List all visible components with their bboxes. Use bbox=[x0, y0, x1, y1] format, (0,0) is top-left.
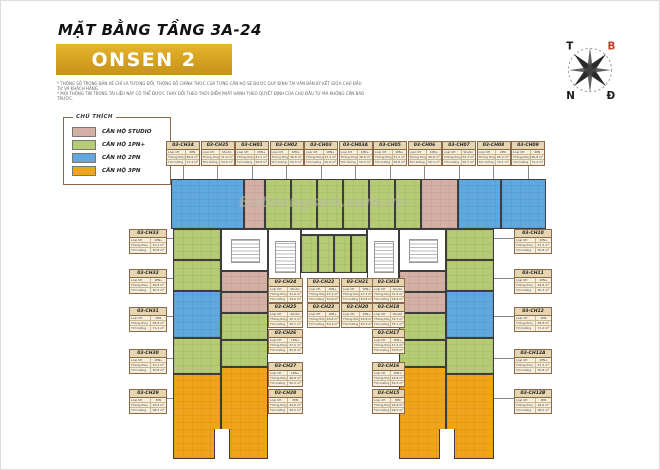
unit-id: 03-CH12A bbox=[515, 350, 551, 358]
unit-block bbox=[265, 179, 291, 229]
unit-block bbox=[221, 292, 268, 313]
elevator-stair-core bbox=[221, 229, 268, 271]
unit-block bbox=[395, 179, 421, 229]
unit-spec-row: Tim tường50.8 m² bbox=[305, 160, 337, 164]
unit-label-03-CH23: 03-CH23Loại CH1PN+Thông thủy46.8 m²Tim t… bbox=[307, 303, 340, 328]
studio-color-swatch bbox=[72, 127, 96, 137]
unit-spec-row: Tim tường99.5 m² bbox=[269, 408, 302, 412]
unit-id: 03-CH30 bbox=[130, 350, 166, 358]
unit-spec-row: Tim tường50.8 m² bbox=[236, 160, 268, 164]
wing-notch bbox=[214, 429, 230, 459]
unit-spec-row: Tim tường98.2 m² bbox=[515, 408, 551, 412]
unit-label-03-CH11: 03-CH11Loại CH1PN+Thông thủy46.8 m²Tim t… bbox=[514, 269, 552, 294]
legend-item-studio: CĂN HỘ STUDIO bbox=[72, 127, 162, 137]
unit-label-03-CH02: 03-CH02Loại CH1PN+Thông thủy46.8 m²Tim t… bbox=[270, 141, 304, 166]
unit-id: 03-CH09 bbox=[512, 142, 544, 150]
label-leader-line bbox=[494, 358, 514, 359]
unit-id: 03-CH01 bbox=[236, 142, 268, 150]
unit-block bbox=[173, 291, 221, 338]
unit-id: 03-CH17 bbox=[373, 330, 404, 338]
unit-label-03-CH08: 03-CH08Loại CH2PNThông thủy65.4 m²Tim tư… bbox=[477, 141, 511, 166]
unit-label-03-CH32: 03-CH32Loại CH1PN+Thông thủy46.8 m²Tim t… bbox=[129, 269, 167, 294]
unit-label-03-CH18: 03-CH18Loại CHStudioThông thủy32.3 m²Tim… bbox=[372, 303, 405, 328]
legend-title: CHÚ THÍCH bbox=[73, 114, 116, 120]
compass-rose-icon: T B N Đ bbox=[557, 35, 623, 101]
unit-label-03-CH01: 03-CH01Loại CH1PN+Thông thủy47.2 m²Tim t… bbox=[235, 141, 269, 166]
unit-label-03-CH03A: 03-CH03ALoại CH1PN+Thông thủy46.8 m²Tim … bbox=[339, 141, 373, 166]
unit-block bbox=[351, 235, 367, 273]
unit-id: 03-CH19 bbox=[373, 279, 404, 287]
unit-label-03-CH09: 03-CH09Loại CH2PNThông thủy66.8 m²Tim tư… bbox=[511, 141, 545, 166]
unit-id: 03-CH29 bbox=[130, 390, 166, 398]
unit-id: 03-CH31 bbox=[130, 308, 166, 316]
unit-label-03-CH25: 03-CH25Loại CHStudioThông thủy32.3 m²Tim… bbox=[268, 303, 303, 328]
legend-label: CĂN HỘ 1PN+ bbox=[102, 142, 145, 148]
unit-spec-row: Tim tường71.4 m² bbox=[515, 326, 551, 330]
unit-spec-row: Tim tường35.1 m² bbox=[443, 160, 475, 164]
unit-label-03-CH20: 03-CH20Loại CH1PN+Thông thủy46.8 m²Tim t… bbox=[341, 303, 374, 328]
3pn-color-swatch bbox=[72, 166, 96, 176]
unit-block bbox=[399, 313, 446, 340]
unit-id: 03-CH11 bbox=[515, 270, 551, 278]
unit-id: 03-CH28 bbox=[269, 390, 302, 398]
compass-south-label: N bbox=[566, 90, 575, 101]
unit-spec-row: Tim tường35.1 m² bbox=[373, 322, 404, 326]
unit-spec-row: Tim tường50.3 m² bbox=[373, 381, 404, 385]
unit-spec-row: Tim tường50.3 m² bbox=[342, 322, 373, 326]
unit-block bbox=[446, 291, 494, 338]
unit-spec-row: Tim tường50.8 m² bbox=[269, 348, 302, 352]
unit-spec-row: Tim tường50.8 m² bbox=[373, 348, 404, 352]
unit-block bbox=[334, 235, 351, 273]
unit-block bbox=[173, 260, 221, 291]
building-name-banner: ONSEN 2 bbox=[56, 44, 232, 75]
legend-item-3pn: CĂN HỘ 3PN bbox=[72, 166, 162, 176]
unit-label-03-CH15: 03-CH15Loại CH3PNThông thủy94.8 m²Tim tư… bbox=[372, 389, 405, 414]
unit-label-03-CH34: 03-CH34Loại CH2PNThông thủy66.8 m²Tim tư… bbox=[166, 141, 200, 166]
unit-block bbox=[173, 338, 221, 374]
unit-label-03-CH19: 03-CH19Loại CHStudioThông thủy31.9 m²Tim… bbox=[372, 278, 405, 303]
unit-spec-row: Tim tường34.6 m² bbox=[202, 160, 234, 164]
unit-spec-row: Tim tường50.8 m² bbox=[515, 368, 551, 372]
unit-id: 03-CH25 bbox=[269, 304, 302, 312]
legend-label: CĂN HỘ STUDIO bbox=[102, 129, 151, 135]
unit-label-03-CH05: 03-CH05Loại CH1PN+Thông thủy47.2 m²Tim t… bbox=[373, 141, 407, 166]
unit-id: 03-CH06 bbox=[409, 142, 441, 150]
unit-id: 03-CH12 bbox=[515, 308, 551, 316]
unit-block bbox=[458, 179, 501, 229]
compass-west-label: T bbox=[566, 40, 573, 52]
unit-id: 03-CH35 bbox=[202, 142, 234, 150]
unit-spec-row: Tim tường98.2 m² bbox=[130, 408, 166, 412]
wing-notch bbox=[439, 429, 455, 459]
corridor bbox=[301, 229, 367, 235]
unit-label-03-CH10: 03-CH10Loại CH1PN+Thông thủy47.2 m²Tim t… bbox=[514, 229, 552, 254]
unit-block bbox=[421, 179, 458, 229]
unit-spec-row: Tim tường50.3 m² bbox=[308, 322, 339, 326]
unit-spec-row: Tim tường71.4 m² bbox=[130, 326, 166, 330]
unit-spec-row: Tim tường70.1 m² bbox=[478, 160, 510, 164]
unit-id: 03-CH07 bbox=[443, 142, 475, 150]
building-name: ONSEN 2 bbox=[92, 49, 197, 71]
unit-label-03-CH12B: 03-CH12BLoại CH3PNThông thủy93.6 m²Tim t… bbox=[514, 389, 552, 414]
unit-block bbox=[399, 271, 446, 292]
unit-label-03-CH03: 03-CH03Loại CH1PN+Thông thủy47.2 m²Tim t… bbox=[304, 141, 338, 166]
unit-spec-row: Tim tường50.3 m² bbox=[271, 160, 303, 164]
unit-block bbox=[318, 235, 334, 273]
unit-label-03-CH12A: 03-CH12ALoại CH1PN+Thông thủy47.2 m²Tim … bbox=[514, 349, 552, 374]
unit-label-03-CH16: 03-CH16Loại CH1PN+Thông thủy46.8 m²Tim t… bbox=[372, 362, 405, 387]
unit-id: 03-CH21 bbox=[342, 279, 373, 287]
unit-block bbox=[173, 229, 221, 260]
unit-label-03-CH06: 03-CH06Loại CH1PN+Thông thủy46.8 m²Tim t… bbox=[408, 141, 442, 166]
unit-spec-row: Tim tường50.8 m² bbox=[130, 368, 166, 372]
unit-label-03-CH17: 03-CH17Loại CH1PN+Thông thủy47.2 m²Tim t… bbox=[372, 329, 405, 354]
unit-id: 03-CH23 bbox=[308, 304, 339, 312]
unit-label-03-CH29: 03-CH29Loại CH3PNThông thủy93.6 m²Tim tư… bbox=[129, 389, 167, 414]
unit-spec-row: Tim tường50.8 m² bbox=[308, 297, 339, 301]
unit-id: 03-CH24 bbox=[269, 279, 302, 287]
disclaimer-line: * THÔNG SỐ TRONG BẢN VẼ CHỈ LÀ TƯƠNG ĐỐI… bbox=[57, 81, 367, 91]
unit-block bbox=[221, 340, 268, 367]
compass-north-label: B bbox=[608, 40, 616, 52]
unit-label-03-CH24: 03-CH24Loại CHStudioThông thủy31.9 m²Tim… bbox=[268, 278, 303, 303]
unit-block bbox=[244, 179, 265, 229]
unit-id: 03-CH32 bbox=[130, 270, 166, 278]
unit-label-03-CH07: 03-CH07Loại CHStudioThông thủy32.3 m²Tim… bbox=[442, 141, 476, 166]
page-title: MẶT BẰNG TẦNG 3A-24 bbox=[58, 21, 262, 39]
unit-block bbox=[343, 179, 369, 229]
unit-spec-row: Tim tường35.1 m² bbox=[269, 322, 302, 326]
legend-label: CĂN HỘ 2PN bbox=[102, 155, 140, 161]
unit-block bbox=[501, 179, 546, 229]
unit-spec-row: Tim tường99.5 m² bbox=[373, 408, 404, 412]
unit-block bbox=[221, 313, 268, 340]
unit-id: 03-CH20 bbox=[342, 304, 373, 312]
unit-block bbox=[399, 292, 446, 313]
unit-label-03-CH35: 03-CH35Loại CHStudioThông thủy31.9 m²Tim… bbox=[201, 141, 235, 166]
compass-east-label: Đ bbox=[607, 90, 616, 101]
unit-label-03-CH27: 03-CH27Loại CH1PN+Thông thủy46.8 m²Tim t… bbox=[268, 362, 303, 387]
unit-id: 03-CH34 bbox=[167, 142, 199, 150]
unit-block bbox=[291, 179, 317, 229]
unit-block bbox=[221, 271, 268, 292]
unit-id: 03-CH12B bbox=[515, 390, 551, 398]
unit-label-03-CH26: 03-CH26Loại CH1PN+Thông thủy47.2 m²Tim t… bbox=[268, 329, 303, 354]
unit-label-03-CH30: 03-CH30Loại CH1PN+Thông thủy47.2 m²Tim t… bbox=[129, 349, 167, 374]
1pn-color-swatch bbox=[72, 140, 96, 150]
unit-label-03-CH22: 03-CH22Loại CH1PN+Thông thủy47.2 m²Tim t… bbox=[307, 278, 340, 303]
label-leader-line bbox=[494, 238, 514, 239]
unit-block bbox=[171, 179, 244, 229]
unit-id: 03-CH26 bbox=[269, 330, 302, 338]
unit-block bbox=[369, 179, 395, 229]
unit-spec-row: Tim tường50.3 m² bbox=[269, 381, 302, 385]
floor-plan-page: MẶT BẰNG TẦNG 3A-24 ONSEN 2 * THÔNG SỐ T… bbox=[0, 0, 660, 470]
unit-spec-row: Tim tường50.3 m² bbox=[409, 160, 441, 164]
elevator-stair-core bbox=[367, 229, 399, 283]
label-leader-line bbox=[494, 278, 514, 279]
unit-spec-row: Tim tường50.8 m² bbox=[374, 160, 406, 164]
unit-spec-row: Tim tường50.8 m² bbox=[515, 248, 551, 252]
unit-id: 03-CH15 bbox=[373, 390, 404, 398]
unit-id: 03-CH27 bbox=[269, 363, 302, 371]
unit-spec-row: Tim tường50.3 m² bbox=[130, 288, 166, 292]
unit-label-03-CH28: 03-CH28Loại CH3PNThông thủy94.8 m²Tim tư… bbox=[268, 389, 303, 414]
legend-item-2pn: CĂN HỘ 2PN bbox=[72, 153, 162, 163]
unit-spec-row: Tim tường50.3 m² bbox=[340, 160, 372, 164]
unit-id: 03-CH08 bbox=[478, 142, 510, 150]
unit-block bbox=[446, 260, 494, 291]
unit-block bbox=[446, 338, 494, 374]
unit-id: 03-CH03 bbox=[305, 142, 337, 150]
unit-block bbox=[399, 340, 446, 367]
unit-spec-row: Tim tường50.8 m² bbox=[342, 297, 373, 301]
legend-item-1pn: CĂN HỘ 1PN+ bbox=[72, 140, 162, 150]
unit-spec-row: Tim tường71.4 m² bbox=[167, 160, 199, 164]
unit-id: 03-CH16 bbox=[373, 363, 404, 371]
legend: CHÚ THÍCH CĂN HỘ STUDIO CĂN HỘ 1PN+ CĂN … bbox=[63, 117, 171, 185]
unit-id: 03-CH10 bbox=[515, 230, 551, 238]
label-leader-line bbox=[494, 398, 514, 399]
unit-label-03-CH31: 03-CH31Loại CH2PNThông thủy66.8 m²Tim tư… bbox=[129, 307, 167, 332]
elevator-stair-core bbox=[399, 229, 446, 271]
unit-id: 03-CH18 bbox=[373, 304, 404, 312]
legend-label: CĂN HỘ 3PN bbox=[102, 168, 140, 174]
unit-block bbox=[317, 179, 343, 229]
unit-label-03-CH33: 03-CH33Loại CH1PN+Thông thủy47.2 m²Tim t… bbox=[129, 229, 167, 254]
label-leader-line bbox=[494, 316, 514, 317]
unit-label-03-CH21: 03-CH21Loại CH1PN+Thông thủy47.2 m²Tim t… bbox=[341, 278, 374, 303]
unit-spec-row: Tim tường71.4 m² bbox=[512, 160, 544, 164]
2pn-color-swatch bbox=[72, 153, 96, 163]
unit-id: 03-CH33 bbox=[130, 230, 166, 238]
unit-spec-row: Tim tường34.6 m² bbox=[269, 297, 302, 301]
disclaimer-line: * MỌI THÔNG TIN TRONG TÀI LIỆU NÀY CÓ TH… bbox=[57, 91, 367, 101]
unit-spec-row: Tim tường50.8 m² bbox=[130, 248, 166, 252]
elevator-stair-core bbox=[268, 229, 301, 283]
unit-id: 03-CH05 bbox=[374, 142, 406, 150]
unit-id: 03-CH22 bbox=[308, 279, 339, 287]
unit-spec-row: Tim tường34.6 m² bbox=[373, 297, 404, 301]
unit-block bbox=[446, 229, 494, 260]
unit-label-03-CH12: 03-CH12Loại CH2PNThông thủy66.8 m²Tim tư… bbox=[514, 307, 552, 332]
unit-block bbox=[301, 235, 318, 273]
disclaimer-text: * THÔNG SỐ TRONG BẢN VẼ CHỈ LÀ TƯƠNG ĐỐI… bbox=[57, 81, 367, 101]
unit-id: 03-CH02 bbox=[271, 142, 303, 150]
unit-id: 03-CH03A bbox=[340, 142, 372, 150]
unit-spec-row: Tim tường50.3 m² bbox=[515, 288, 551, 292]
